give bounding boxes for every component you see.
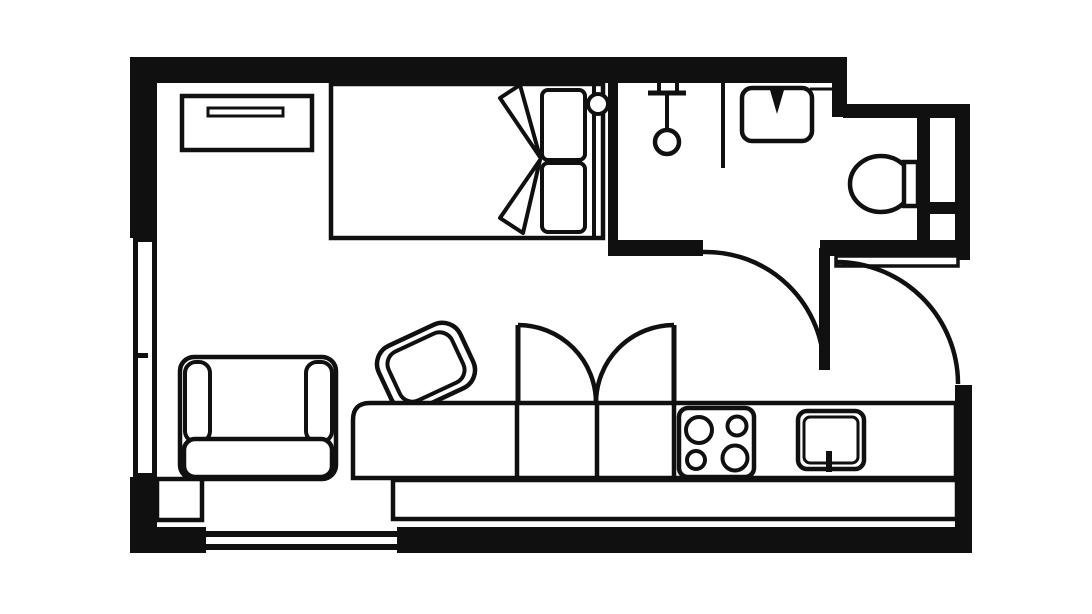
armchair-armrest <box>306 362 332 442</box>
pillow <box>542 90 585 160</box>
bathroom-door <box>703 248 830 370</box>
bathroom-sink <box>742 88 833 141</box>
stove-top <box>679 408 754 477</box>
armchair-seat <box>184 439 332 477</box>
window-line <box>206 531 397 537</box>
dresser <box>182 96 312 150</box>
dresser-body <box>182 96 312 150</box>
bathroom-left-wall <box>608 83 618 256</box>
left-window <box>133 238 157 477</box>
counter-front-panel <box>393 480 957 519</box>
burner <box>687 451 705 469</box>
cabinet-doors <box>518 325 674 403</box>
door-swing-arc <box>703 252 824 370</box>
niche-divider <box>917 202 970 214</box>
pillow <box>542 163 585 232</box>
door-swing-arc <box>836 262 958 384</box>
floor-plan-canvas: Studio apartment floor plan <box>0 0 1092 614</box>
corner-block <box>157 479 202 520</box>
dresser-handle <box>208 108 283 116</box>
wall-lamp <box>588 94 608 114</box>
bathroom-bottom-wall-right <box>820 240 968 256</box>
bottom-wall-main <box>397 527 972 553</box>
bathroom-bottom-wall-left <box>608 240 703 256</box>
window-line <box>152 238 157 477</box>
top-wall <box>130 57 847 83</box>
toilet <box>850 156 918 212</box>
burner <box>723 446 748 471</box>
shower <box>648 83 686 154</box>
armchair <box>180 357 336 479</box>
bottom-wall-left <box>130 527 206 553</box>
burner <box>728 417 747 436</box>
window-cap <box>133 473 157 477</box>
left-wall-upper <box>130 57 157 238</box>
window-mullion <box>137 353 148 358</box>
shower-head <box>655 130 679 154</box>
sink-tap <box>826 451 832 472</box>
toilet-tank-neck <box>904 162 918 206</box>
kitchen-sink <box>798 411 864 472</box>
entry-door <box>836 256 958 384</box>
double-bed <box>331 84 608 238</box>
window-line <box>206 544 397 550</box>
floor-plan-svg: Studio apartment floor plan <box>0 0 1092 614</box>
armchair-armrest <box>185 362 210 442</box>
cabinet-door-arc <box>518 325 596 403</box>
bottom-window <box>206 531 397 550</box>
burner <box>686 417 712 443</box>
cabinet-door-arc <box>596 325 674 403</box>
alcove-top-wall <box>843 104 970 118</box>
niche-right-wall <box>955 117 970 260</box>
window-cap <box>133 238 157 242</box>
